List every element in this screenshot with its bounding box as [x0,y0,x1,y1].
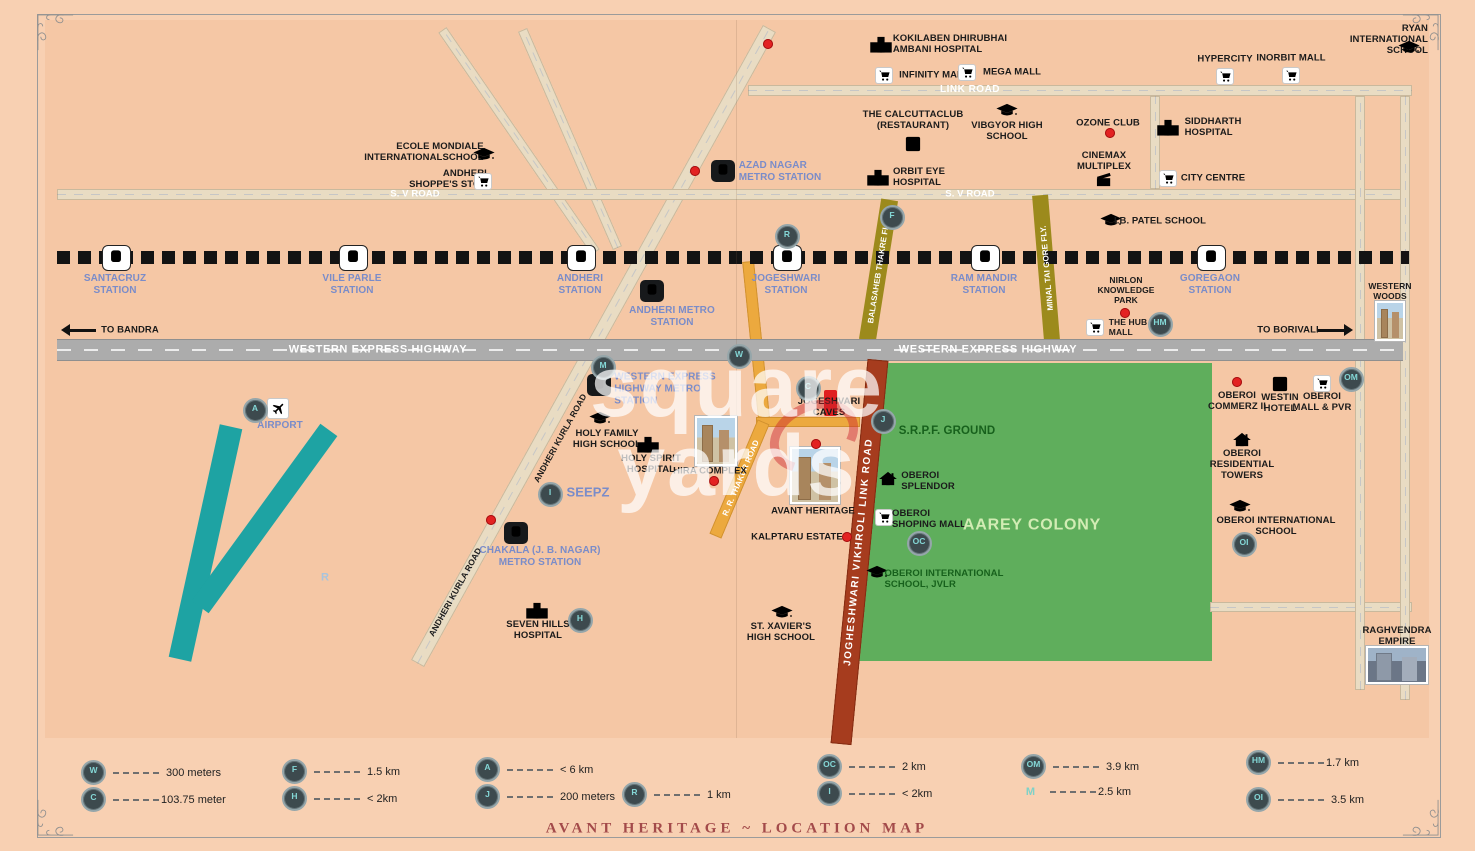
legend-value-m: 2.5 km [1098,786,1131,798]
shopping-cart-icon [1314,376,1330,391]
western-woods-photo [1377,303,1403,339]
to-borivali-label: TO BORIVALI [1257,324,1318,335]
legend-value-i: < 2km [902,788,932,800]
hospital-icon [636,436,660,453]
sv-road [57,189,1409,200]
marker-hm: HM [1148,312,1173,337]
kokilaben-hospital-label: KOKILABEN DHIRUBHAI AMBANI HOSPITAL [893,33,1007,55]
legend-item-m: M2.5 km [1018,786,1131,798]
oberoi-shoping-mall-label: OBEROI SHOPING MALL [892,508,966,530]
hypercity-label: HYPERCITY [1197,53,1252,64]
legend-value-oi: 3.5 km [1331,794,1364,806]
legend-item-w: W300 meters [81,760,221,785]
oberoi-mall-pvr-label: OBEROI MALL & PVR [1293,391,1352,413]
weh-metro-station-label: WESTERN EXPRESS HIGHWAY METRO STATION [614,371,716,406]
marker-oi: OI [1232,532,1257,557]
marker-f: F [880,205,905,230]
avant-heritage-photo [792,449,838,502]
azad-nagar-metro-label: AZAD NAGAR METRO STATION [739,160,822,184]
legend-dash [654,794,700,796]
goregaon-station-label: GOREGAON STATION [1180,273,1240,297]
right-arrow-icon [1318,329,1344,332]
legend-item-om: OM3.9 km [1021,754,1139,779]
airport-label: AIRPORT [257,420,303,432]
corner-flourish-icon [1401,798,1439,836]
oberoi-international-school-label: OBEROI INTERNATIONAL SCHOOL [1217,515,1336,537]
srpf-ground-label: S.R.P.F. GROUND [899,425,996,439]
legend-item-j: J200 meters [475,784,615,809]
legend-dash [1050,791,1096,793]
raghvendra-empire-label: RAGHVENDRA EMPIRE [1362,625,1431,647]
holy-spirit-hospital-label: HOLY SPIRIT HOSPITAL [621,453,681,475]
city-centre-label: CITY CENTRE [1181,172,1245,183]
ecole-mondiale-label: ECOLE MONDIALE INTERNATIONALSCHOOL [364,141,483,163]
metro-station-icon [711,160,735,182]
metro-station-icon [640,280,664,302]
vibgyor-school-label: VIBGYOR HIGH SCHOOL [971,120,1042,142]
shopping-cart-icon [1217,69,1233,84]
graduation-cap-icon [588,411,612,426]
red-dot-marker [486,515,496,525]
legend-dash [1278,762,1324,764]
oberoi-splendor-label: OBEROI SPLENDOR [901,470,955,492]
legend-marker-c: C [81,787,106,812]
red-dot-marker [690,166,700,176]
graduation-cap-icon [995,103,1019,118]
weh-label-right: WESTERN EXPRESS HIGHWAY [899,344,1077,357]
sv-road-label-right: S. V ROAD [945,188,994,199]
hospital-icon [866,169,890,186]
legend-dash [314,771,360,773]
legend-dash [1278,799,1324,801]
train-station-icon [567,245,596,271]
nirlon-knowledge-park-label: NIRLON KNOWLEDGE PARK [1097,275,1154,305]
aarey-colony-label: AAREY COLONY [963,517,1101,536]
legend-item-oi: OI3.5 km [1246,787,1364,812]
house-icon [1232,432,1252,447]
ib-patel-school-label: I.B. PATEL SCHOOL [1114,215,1206,226]
legend-dash [1053,766,1099,768]
raghvendra-empire-photo [1368,648,1426,682]
weh-label-left: WESTERN EXPRESS HIGHWAY [289,344,467,357]
train-station-icon [773,245,802,271]
legend-item-hm: HM1.7 km [1246,750,1359,775]
legend-marker-om: OM [1021,754,1046,779]
legend-dash [113,799,159,801]
legend-marker-j: J [475,784,500,809]
legend-marker-oi: OI [1246,787,1271,812]
vertical-road-1 [1150,96,1160,189]
shopping-cart-icon [1160,171,1176,186]
marker-oc: OC [907,531,932,556]
marker-c: C [796,376,821,401]
red-dot-marker [1120,308,1130,318]
graduation-cap-icon [1228,499,1252,514]
oberoi-residential-label: OBEROI RESIDENTIAL TOWERS [1210,448,1274,482]
calcutta-club-label: THE CALCUTTACLUB (RESTAURANT) [863,109,964,131]
chakala-metro-label: CHAKALA (J. B. NAGAR) METRO STATION [479,545,600,569]
st-xavier-school-label: ST. XAVIER'S HIGH SCHOOL [747,621,815,643]
orbit-eye-hospital-label: ORBIT EYE HOSPITAL [893,166,945,188]
legend-value-a: < 6 km [560,764,593,776]
marker-m: M [591,355,616,380]
legend-marker-i: I [817,781,842,806]
legend-value-r: 1 km [707,789,731,801]
seepz-label: SEEPZ [566,484,609,499]
legend-marker-m: M [1018,786,1043,798]
legend-dash [113,772,159,774]
red-dot-marker [811,439,821,449]
page-title: AVANT HERITAGE ~ LOCATION MAP [546,821,928,838]
legend-value-f: 1.5 km [367,766,400,778]
legend-value-j: 200 meters [560,791,615,803]
legend-value-oc: 2 km [902,761,926,773]
r-area-label: R [321,572,329,585]
hira-complex-label: HIRA COMPLEX [673,465,747,476]
legend-item-c: C103.75 meter [81,787,226,812]
red-dot-marker [842,532,852,542]
restaurant-icon [905,136,921,152]
legend-item-i: I< 2km [817,781,932,806]
vertical-road-3 [1400,96,1410,700]
legend-marker-h: H [282,786,307,811]
train-station-icon [339,245,368,271]
legend-dash [314,798,360,800]
hospital-icon [869,36,893,53]
east-cross-road [1210,602,1412,612]
graduation-cap-icon [472,147,496,162]
legend-value-w: 300 meters [166,767,221,779]
location-map: LINK ROAD S. V ROAD S. V ROAD WESTERN EX… [0,0,1475,851]
shopping-cart-icon [959,65,975,80]
siddharth-hospital-label: SIDDHARTH HOSPITAL [1185,116,1242,138]
marker-i: I [538,482,563,507]
link-road [748,85,1412,96]
legend-dash [849,793,895,795]
andheri-metro-label: ANDHERI METRO STATION [629,305,715,329]
red-dot-marker [1105,128,1115,138]
ram-mandir-station-label: RAM MANDIR STATION [951,273,1018,297]
legend-item-a: A< 6 km [475,757,593,782]
hub-mall-label: THE HUB MALL [1109,317,1147,337]
link-road-label: LINK ROAD [940,84,1000,96]
shopping-cart-icon [1283,68,1299,83]
restaurant-icon [1272,376,1288,392]
hira-complex-photo [697,418,735,464]
shopping-cart-icon [876,68,892,83]
fold-line [736,20,737,738]
legend-value-h: < 2km [367,793,397,805]
marker-om: OM [1339,367,1364,392]
hospital-icon [525,602,549,619]
marker-r: R [775,224,800,249]
legend-item-r: R1 km [622,782,731,807]
train-station-icon [1197,245,1226,271]
legend-value-hm: 1.7 km [1326,757,1359,769]
legend-marker-hm: HM [1246,750,1271,775]
marker-j: J [871,409,896,434]
legend-item-f: F1.5 km [282,759,400,784]
jogeshwari-station-label: JOGESHWARI STATION [752,273,821,297]
santacruz-station-label: SANTACRUZ STATION [84,273,146,297]
metro-station-icon [504,522,528,544]
avant-heritage-label: AVANT HERITAGE [771,505,855,516]
seven-hills-hospital-label: SEVEN HILLS HOSPITAL [506,619,569,641]
legend-item-oc: OC2 km [817,754,926,779]
andheri-station-label: ANDHERI STATION [557,273,603,297]
legend-marker-w: W [81,760,106,785]
to-bandra-label: TO BANDRA [101,324,159,335]
marker-a: A [243,398,268,423]
house-icon [878,471,898,486]
legend-value-om: 3.9 km [1106,761,1139,773]
legend-dash [507,796,553,798]
shopping-cart-icon [1087,320,1103,335]
holy-family-school-label: HOLY FAMILY HIGH SCHOOL [573,428,641,450]
marker-h: H [568,608,593,633]
vertical-road-2 [1355,96,1365,690]
vile-parle-station-label: VILE PARLE STATION [322,273,381,297]
mega-mall-label: MEGA MALL [983,66,1041,77]
orange-connector-road [756,417,860,427]
airplane-icon [268,399,288,418]
cinemax-label: CINEMAX MULTIPLEX [1077,150,1131,172]
legend-dash [507,769,553,771]
red-dot-marker [709,476,719,486]
hospital-icon [1156,119,1180,136]
kalptaru-estate-label: KALPTARU ESTATE [751,531,843,542]
oberoi-commerz-label: OBEROI COMMERZ II [1208,390,1266,412]
legend-marker-a: A [475,757,500,782]
train-station-icon [102,245,131,271]
inorbit-mall-label: INORBIT MALL [1256,52,1325,63]
ozone-club-label: OZONE CLUB [1076,117,1140,128]
legend-marker-r: R [622,782,647,807]
left-arrow-icon [70,329,96,332]
oberoi-school-jvlr-label: OBEROI INTERNATIONAL SCHOOL, JVLR [885,568,1004,590]
graduation-cap-icon [770,605,794,620]
legend-item-h: H< 2km [282,786,397,811]
corner-flourish-icon [37,798,75,836]
cinema-icon [1096,172,1112,187]
legend-dash [849,766,895,768]
graduation-cap-icon [1397,40,1421,55]
western-woods-label: WESTERN WOODS [1368,281,1411,301]
red-dot-marker [763,39,773,49]
shopping-cart-icon [876,510,892,525]
red-dot-marker [1232,377,1242,387]
train-station-icon [971,245,1000,271]
legend-value-c: 103.75 meter [161,794,226,806]
legend-marker-f: F [282,759,307,784]
marker-w: W [727,344,752,369]
shopping-cart-icon [475,174,491,189]
legend-marker-oc: OC [817,754,842,779]
